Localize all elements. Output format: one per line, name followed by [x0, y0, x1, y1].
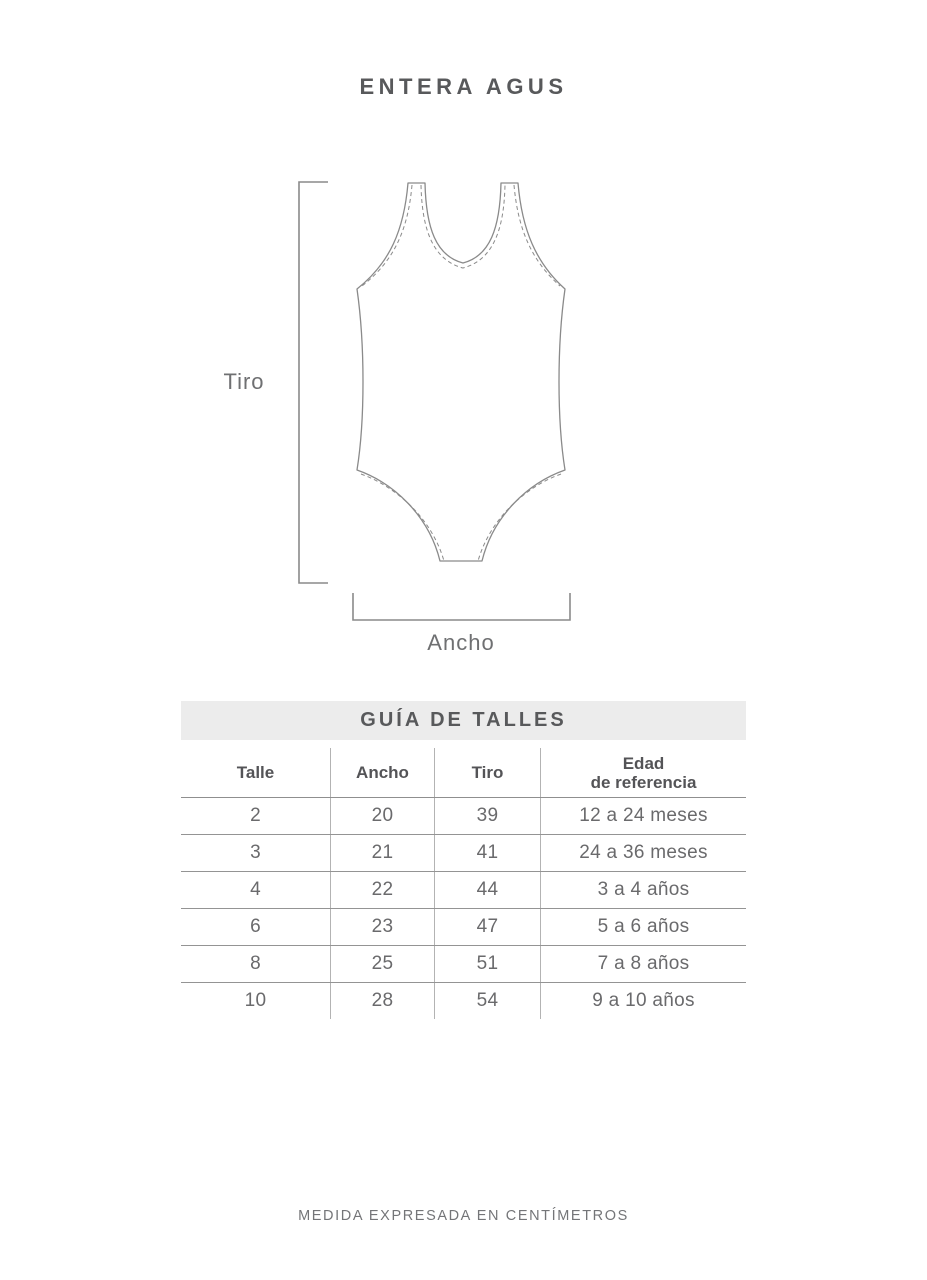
cell-ancho: 23: [331, 909, 435, 945]
swimsuit-outline: [357, 183, 565, 561]
cell-edad: 5 a 6 años: [541, 909, 746, 945]
column-header-edad: Edad de referencia: [541, 748, 746, 797]
size-guide-title: GUÍA DE TALLES: [360, 709, 566, 732]
cell-ancho: 28: [331, 983, 435, 1019]
cell-tiro: 41: [435, 835, 541, 871]
table-row: 3 21 41 24 a 36 meses: [181, 835, 746, 872]
cell-talle: 3: [181, 835, 331, 871]
tiro-bracket: [299, 182, 328, 583]
cell-ancho: 25: [331, 946, 435, 982]
tiro-label: Tiro: [198, 369, 290, 395]
cell-tiro: 47: [435, 909, 541, 945]
cell-edad: 7 a 8 años: [541, 946, 746, 982]
cell-ancho: 21: [331, 835, 435, 871]
ancho-label: Ancho: [285, 630, 637, 656]
column-header-talle: Talle: [181, 748, 331, 797]
cell-edad: 3 a 4 años: [541, 872, 746, 908]
swimsuit-diagram: [285, 170, 605, 635]
page-title: ENTERA AGUS: [0, 74, 927, 100]
cell-ancho: 20: [331, 798, 435, 834]
cell-talle: 10: [181, 983, 331, 1019]
cell-talle: 2: [181, 798, 331, 834]
table-header-row: Talle Ancho Tiro Edad de referencia: [181, 748, 746, 798]
cell-talle: 4: [181, 872, 331, 908]
cell-tiro: 51: [435, 946, 541, 982]
cell-tiro: 39: [435, 798, 541, 834]
ancho-bracket: [353, 593, 570, 620]
column-header-tiro: Tiro: [435, 748, 541, 797]
table-row: 10 28 54 9 a 10 años: [181, 983, 746, 1019]
table-row: 2 20 39 12 a 24 meses: [181, 798, 746, 835]
cell-edad: 24 a 36 meses: [541, 835, 746, 871]
size-guide-page: ENTERA AGUS Tiro Ancho GUÍA DE TALLES Ta…: [0, 0, 927, 1280]
cell-ancho: 22: [331, 872, 435, 908]
size-table: Talle Ancho Tiro Edad de referencia 2 20…: [181, 748, 746, 1019]
table-row: 4 22 44 3 a 4 años: [181, 872, 746, 909]
cell-edad: 9 a 10 años: [541, 983, 746, 1019]
size-guide-banner: GUÍA DE TALLES: [181, 701, 746, 740]
cell-talle: 6: [181, 909, 331, 945]
cell-edad: 12 a 24 meses: [541, 798, 746, 834]
measurement-unit-note: MEDIDA EXPRESADA EN CENTÍMETROS: [0, 1208, 927, 1224]
table-row: 6 23 47 5 a 6 años: [181, 909, 746, 946]
cell-tiro: 54: [435, 983, 541, 1019]
cell-tiro: 44: [435, 872, 541, 908]
column-header-ancho: Ancho: [331, 748, 435, 797]
table-row: 8 25 51 7 a 8 años: [181, 946, 746, 983]
cell-talle: 8: [181, 946, 331, 982]
